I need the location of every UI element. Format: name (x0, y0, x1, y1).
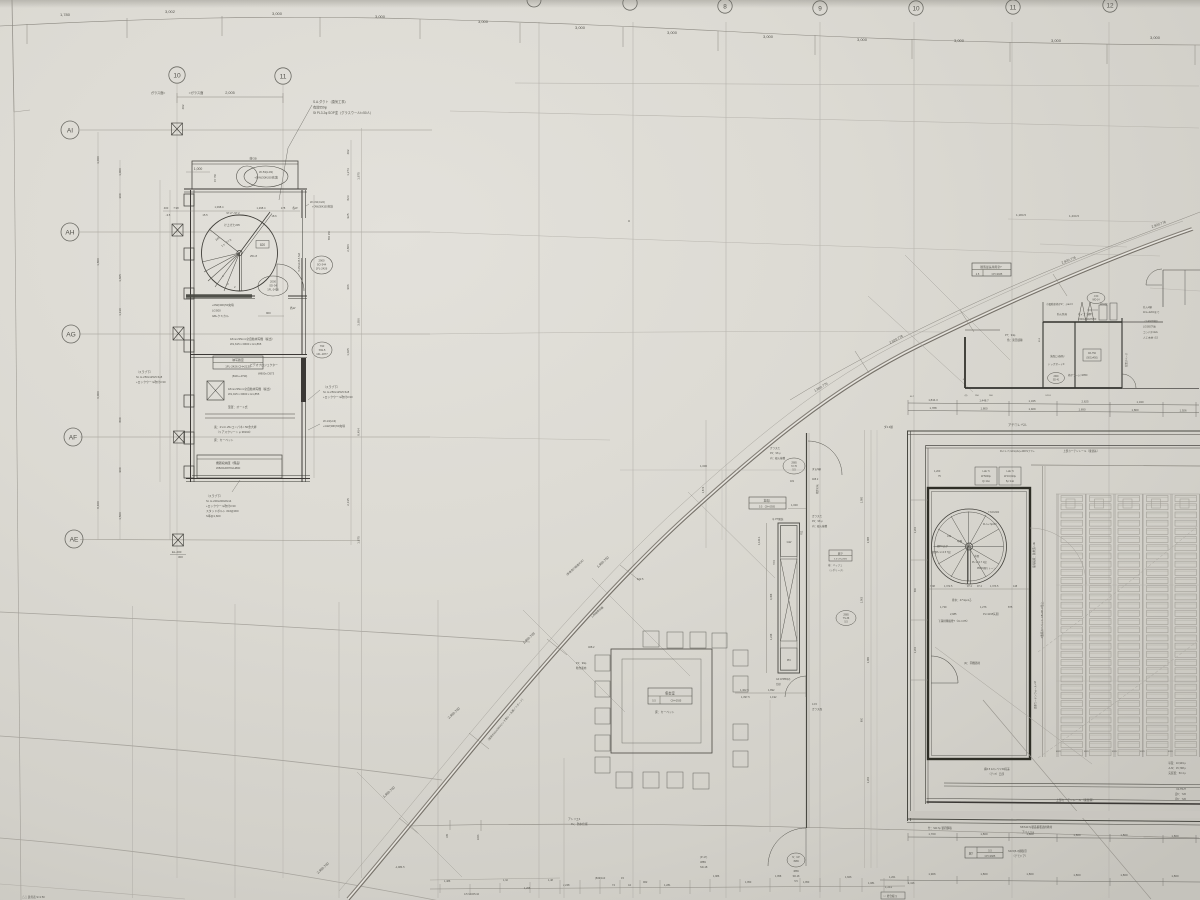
svg-text:3,000: 3,000 (667, 30, 678, 35)
svg-text:251.8: 251.8 (250, 254, 257, 258)
svg-text:1,273: 1,273 (346, 168, 350, 176)
svg-text:定F：726: 定F：726 (1175, 792, 1187, 796)
svg-text:820: 820 (260, 243, 266, 247)
svg-text:各W: 各W (292, 206, 298, 210)
svg-text:+DW(30K)50充填: +DW(30K)50充填 (312, 205, 333, 209)
svg-text:1,025: 1,025 (346, 348, 350, 356)
svg-text:1,875: 1,875 (357, 536, 361, 544)
svg-text:2600: 2600 (1053, 376, 1059, 378)
svg-text:場所の杭: 場所の杭 (815, 484, 819, 494)
svg-text:3,000: 3,000 (857, 37, 868, 42)
svg-text:（スラブ下）: （スラブ下） (136, 370, 153, 374)
svg-text:W820xD870xH800: W820xD870xH800 (216, 466, 241, 470)
svg-text:1,000: 1,000 (118, 168, 122, 176)
svg-text:1,950: 1,950 (745, 881, 752, 884)
svg-text:1,397.5: 1,397.5 (741, 695, 750, 699)
svg-text:2,625: 2,625 (1082, 400, 1089, 404)
svg-text:角：東天検種: 角：東天検種 (1007, 338, 1023, 342)
svg-text:GW: GW (787, 540, 792, 544)
svg-text:AH: AH (65, 229, 74, 236)
svg-text:ガラス面=: ガラス面= (151, 90, 166, 95)
svg-text:=ガラス面: =ガラス面 (189, 90, 204, 95)
svg-text:1,606: 1,606 (845, 875, 852, 879)
svg-text:ドッグオードF: ドッグオードF (1048, 362, 1065, 366)
svg-text:1,800: 1,800 (980, 832, 988, 836)
svg-text:棚PC店子: 棚PC店子 (937, 544, 948, 548)
svg-text:400: 400 (164, 206, 169, 210)
svg-text:1FL+2200まで: 1FL+2200まで (1143, 310, 1160, 314)
svg-text:P2：98 μ: P2：98 μ (812, 520, 823, 523)
svg-text:11: 11 (1010, 4, 1017, 11)
svg-text:4.15: 4.15 (812, 703, 817, 706)
svg-text:600: 600 (861, 717, 864, 722)
svg-text:1,980: 1,980 (861, 496, 864, 503)
svg-text:1,800: 1,800 (1073, 833, 1081, 837)
svg-text:3,000: 3,000 (375, 14, 386, 19)
svg-text:408.2: 408.2 (588, 645, 595, 649)
svg-text:LxE 7t: LxE 7t (982, 470, 989, 473)
svg-text:1,800: 1,800 (1026, 872, 1034, 876)
svg-text:(50Cx450): (50Cx450) (1086, 357, 1097, 360)
svg-text:PL=1195矢間: PL=1195矢間 (983, 612, 999, 616)
svg-text:1,000: 1,000 (700, 464, 707, 468)
svg-text:2,806: 2,806 (346, 244, 350, 252)
svg-text:（リアスクリーン φ 38190）: （リアスクリーン φ 38190） (216, 430, 252, 434)
svg-text:1,373.5: 1,373.5 (990, 585, 999, 588)
svg-text:408.2: 408.2 (812, 478, 819, 481)
svg-text:1,000: 1,000 (194, 167, 203, 171)
svg-text:FL：防水仕様: FL：防水仕様 (571, 822, 588, 826)
svg-text:W:16,610μ: W:16,610μ (1004, 475, 1017, 478)
svg-text:1,690: 1,690 (1079, 408, 1086, 412)
svg-text:機器収納庫（備品）: 機器収納庫（備品） (216, 460, 242, 465)
svg-text:1,098.4: 1,098.4 (215, 205, 224, 209)
svg-text:3889: 3889 (793, 870, 799, 873)
svg-text:位置スペース: 位置スペース (1124, 352, 1128, 367)
svg-text:+ロックウール吹付t=30: +ロックウール吹付t=30 (136, 380, 166, 384)
svg-text:防火区画: 防火区画 (1057, 312, 1068, 316)
svg-text:FL:L+7φ±00: FL:L+7φ±00 (983, 523, 997, 526)
svg-text:2900: 2900 (319, 259, 325, 263)
svg-text:床：カーペット: 床：カーペット (214, 438, 234, 442)
svg-text:SO-344: SO-344 (317, 263, 327, 267)
svg-text:1,200: 1,200 (914, 646, 917, 653)
svg-text:（テモドア）: （テモドア） (1012, 854, 1028, 858)
svg-text:床：カーペット: 床：カーペット (655, 710, 675, 714)
svg-text:下溝排隊擁壁?（FL=475）: 下溝排隊擁壁?（FL=475） (938, 619, 969, 623)
svg-text:1,958: 1,958 (775, 875, 782, 878)
svg-text:4,498: 4,498 (770, 593, 773, 600)
svg-text:SD-18: SD-18 (700, 865, 708, 869)
svg-text:定F：726: 定F：726 (1175, 797, 1187, 801)
svg-text:950%踊りトーン: 950%踊りトーン (977, 566, 996, 570)
svg-text:1,140.1: 1,140.1 (758, 536, 761, 545)
svg-text:7.98: 7.98 (173, 206, 179, 210)
svg-text:（スラブ下）: （スラブ下） (206, 494, 223, 498)
svg-text:セイフン棚H: セイフン棚H (1078, 312, 1093, 316)
svg-text:900: 900 (118, 467, 122, 472)
svg-text:1,800: 1,800 (1171, 834, 1179, 838)
svg-text:廊下: 廊下 (838, 552, 844, 556)
svg-text:1,800: 1,800 (980, 872, 988, 876)
svg-text:18mm/35mm全自動映写機（操出）: 18mm/35mm全自動映写機（操出） (228, 387, 272, 391)
svg-text:上部カーテンレール（乗替區）: 上部カーテンレール（乗替區） (1056, 798, 1095, 802)
svg-text:AI: AI (67, 127, 73, 134)
svg-text:W-C93,C22): W-C93,C22) (310, 200, 325, 204)
svg-text:1,081: 1,081 (868, 881, 875, 885)
svg-text:4.5 940±5.10: 4.5 940±5.10 (464, 892, 480, 896)
svg-text:300: 300 (118, 193, 122, 198)
svg-text:2.5: 2.5 (976, 273, 980, 276)
svg-text:SD-18: SD-18 (793, 875, 800, 878)
svg-text:1,246: 1,246 (770, 633, 773, 640)
svg-text:SW-5: SW-5 (319, 348, 326, 352)
svg-text:2,985: 2,985 (867, 536, 870, 543)
svg-text:3989: 3989 (793, 860, 799, 863)
svg-text:6970: 6970 (1056, 751, 1062, 753)
svg-text:1,875: 1,875 (357, 172, 361, 180)
svg-text:6,000: 6,000 (96, 391, 100, 399)
svg-text:1,892: 1,892 (768, 688, 775, 692)
svg-text:3,000: 3,000 (954, 38, 965, 43)
svg-text:WD-14: WD-14 (1092, 300, 1100, 302)
svg-text:2223: 2223 (477, 834, 480, 840)
svg-text:内：殿火検種: 内：殿火検種 (770, 456, 786, 460)
svg-text:1,276: 1,276 (980, 605, 987, 609)
svg-text:集会室: 集会室 (665, 691, 675, 696)
svg-text:7.98: 7.98 (930, 585, 935, 588)
svg-text:St. H-250x125x5.5x8: St. H-250x125x5.5x8 (136, 375, 163, 379)
svg-text:P1：99φ: P1：99φ (576, 661, 587, 665)
svg-text:グラス乙: グラス乙 (770, 446, 780, 450)
svg-text:RA 750: RA 750 (1088, 352, 1097, 355)
svg-text:3,000: 3,000 (1051, 38, 1062, 43)
svg-text:W:5000μ: W:5000μ (981, 475, 992, 478)
svg-text:N：UP: N：UP (792, 856, 800, 859)
svg-text:1,906: 1,906 (928, 872, 936, 876)
svg-text:CH=2935: CH=2935 (992, 273, 1003, 276)
svg-text:帯：バッフェ: 帯：バッフェ (828, 563, 843, 567)
svg-text:Qr:14α: Qr:14α (982, 480, 990, 483)
svg-text:椅子ラーム=2850: 椅子ラーム=2850 (1068, 373, 1088, 377)
svg-text:スタッドボルト #16@300: スタッドボルト #16@300 (206, 509, 239, 513)
svg-text:P7：94φ: P7：94φ (1005, 333, 1016, 337)
svg-text:SD-41: SD-41 (1053, 380, 1060, 382)
svg-text:2,985: 2,985 (950, 612, 957, 616)
svg-text:材GB: 材GB (249, 156, 256, 161)
svg-text:1,800: 1,800 (1026, 832, 1034, 836)
svg-text:1,200: 1,200 (867, 776, 870, 783)
svg-text:1,950: 1,950 (803, 881, 810, 884)
svg-text:案：2'x4 t.25xコンパネ t 50金大絆: 案：2'x4 t.25xコンパネ t 50金大絆 (214, 425, 257, 429)
svg-text:GB+ケミカル: GB+ケミカル (212, 314, 229, 318)
svg-text:823: 823 (346, 195, 350, 200)
svg-text:3889: 3889 (700, 860, 706, 864)
svg-text:2,135: 2,135 (346, 498, 350, 506)
svg-text:5.5 CH=2685: 5.5 CH=2685 (834, 559, 848, 561)
svg-text:5.5: 5.5 (652, 700, 656, 703)
svg-text:6970: 6970 (1140, 751, 1146, 753)
svg-text:1,281: 1,281 (664, 883, 671, 887)
svg-text:（スラブ下）: （スラブ下） (323, 385, 340, 389)
svg-text:St. H-250x125x5.5x8: St. H-250x125x5.5x8 (323, 390, 350, 394)
svg-text:人工木材 t 15: 人工木材 t 15 (1143, 336, 1158, 340)
svg-text:1,800: 1,800 (1120, 873, 1128, 877)
svg-text:SD-5(5-3)鋼製引: SD-5(5-3)鋼製引 (1008, 849, 1028, 853)
svg-text:仕：S117φ 製研鋼取: 仕：S117φ 製研鋼取 (928, 826, 952, 830)
svg-text:○○ 総合級 §: ○○ 総合級 § (883, 894, 897, 898)
svg-text:3,000: 3,000 (763, 34, 774, 39)
svg-text:実装置：53.4 μ: 実装置：53.4 μ (1168, 771, 1186, 775)
svg-text:GF 1PPB0(2): GF 1PPB0(2) (776, 678, 791, 681)
svg-text:3,000: 3,000 (272, 11, 283, 16)
svg-text:アトリエ4: アトリエ4 (568, 817, 581, 821)
svg-text:1,800: 1,800 (1132, 408, 1139, 412)
svg-text:1,192: 1,192 (770, 695, 777, 699)
svg-text:1,986: 1,986 (713, 875, 720, 878)
svg-text:875: 875 (1008, 605, 1013, 609)
svg-text:CH=2685: CH=2685 (985, 855, 996, 858)
svg-text:1,372.5: 1,372.5 (944, 585, 953, 588)
svg-text:1,905: 1,905 (861, 596, 864, 603)
svg-text:1,800: 1,800 (1171, 874, 1179, 878)
svg-text:10: 10 (912, 5, 920, 12)
svg-text:CH=2935: CH=2935 (671, 700, 682, 703)
svg-text:1FL-1877: 1FL-1877 (316, 352, 328, 356)
svg-text:1,200: 1,200 (914, 526, 917, 533)
svg-text:15.5: 15.5 (202, 213, 208, 217)
svg-text:1,130: 1,130 (118, 308, 122, 316)
svg-text:97.4: 97.4 (967, 585, 972, 588)
svg-text:18mm/35mm全自動映写機（操出）: 18mm/35mm全自動映写機（操出） (230, 337, 274, 341)
svg-text:SD-34: SD-34 (269, 284, 277, 288)
svg-text:△△ 建具表 S=1:50: △△ 建具表 S=1:50 (22, 895, 45, 899)
svg-text:ダ2.3額: ダ2.3額 (884, 425, 893, 429)
svg-text:型置：オート式: 型置：オート式 (228, 405, 248, 409)
svg-text:1,448.7: 1,448.7 (979, 399, 989, 403)
svg-text:1,929: 1,929 (1029, 407, 1036, 411)
svg-text:178: 178 (281, 206, 286, 210)
svg-text:1,486: 1,486 (444, 880, 451, 883)
svg-text:622.5: 622.5 (637, 577, 644, 581)
svg-text:1,500: 1,500 (118, 512, 122, 520)
svg-text:2重床カーペット AB+48 メ仕上: 2重床カーペット AB+48 メ仕上 (1040, 601, 1044, 638)
svg-text:LGS65下地: LGS65下地 (1143, 325, 1156, 329)
svg-text:(8): (8) (965, 395, 968, 397)
svg-text:W-13(L13): W-13(L13) (323, 419, 336, 423)
svg-text:1,298.4: 1,298.4 (257, 206, 266, 210)
svg-text:906: 906 (346, 284, 350, 289)
svg-text:11: 11 (280, 74, 287, 81)
svg-text:-3.5: -3.5 (166, 213, 171, 217)
svg-text:S.A.ダクト（換気工事）: S.A.ダクト（換気工事） (313, 99, 348, 104)
svg-text:1,434.5: 1,434.5 (1069, 214, 1079, 218)
svg-text:W-53(L03): W-53(L03) (259, 170, 273, 174)
svg-text:名入2額: 名入2額 (1143, 305, 1152, 309)
svg-text:1,780: 1,780 (60, 12, 71, 17)
svg-text:横6.5 12シペリ50段差: 横6.5 12シペリ50段差 (984, 767, 1010, 771)
svg-text:6970: 6970 (1112, 751, 1118, 753)
svg-text:各W: 各W (290, 306, 296, 310)
svg-text:5.5: 5.5 (988, 850, 992, 853)
svg-text:3,000: 3,000 (1150, 35, 1161, 40)
svg-text:97.4: 97.4 (977, 585, 982, 588)
svg-text:手摺: 手摺 (974, 554, 980, 558)
svg-text:1,800: 1,800 (981, 407, 988, 411)
svg-text:1,700: 1,700 (928, 832, 936, 836)
svg-text:W1,615 x D600 x H1,865: W1,615 x D600 x H1,865 (230, 342, 262, 346)
svg-text:観覧最長専用室?: 観覧最長専用室? (980, 265, 1002, 269)
svg-text:925: 925 (346, 213, 350, 218)
svg-text:S率@1,600: S率@1,600 (206, 514, 221, 518)
svg-text:DL75U?: DL75U? (1176, 787, 1186, 791)
svg-text:仕様: 仕様 (776, 682, 781, 686)
svg-text:PIC: PIC (787, 658, 791, 662)
svg-text:402: 402 (181, 104, 185, 109)
svg-text:3,656: 3,656 (357, 318, 361, 326)
svg-text:コンパネt12u: コンパネt12u (1143, 330, 1158, 334)
svg-text:1,800: 1,800 (96, 258, 100, 266)
svg-text:ビデオプロジェクター: ビデオプロジェクター (250, 363, 278, 367)
svg-text:8,400: 8,400 (96, 501, 100, 509)
svg-text:W1,915 x D600 x H1,855: W1,915 x D600 x H1,855 (228, 392, 260, 396)
svg-text:1,788: 1,788 (930, 406, 937, 410)
svg-text:有効550φ: 有効550φ (313, 105, 327, 110)
svg-text:St. H-200x200x8x14: St. H-200x200x8x14 (206, 499, 232, 503)
svg-text:6970: 6970 (1168, 751, 1174, 753)
svg-text:LxE 7t: LxE 7t (1006, 470, 1013, 473)
svg-text:廊間PL:L=4.5 7段: 廊間PL:L=4.5 7段 (931, 550, 951, 554)
svg-text:73.9: 73.9 (773, 560, 776, 565)
svg-text:900: 900 (914, 587, 917, 592)
svg-text:AF: AF (69, 434, 77, 441)
svg-text:客席段床：鉄骨造 t-3b: 客席段床：鉄骨造 t-3b (1032, 541, 1036, 567)
svg-text:6970: 6970 (1084, 751, 1090, 753)
svg-text:18.6: 18.6 (271, 214, 277, 218)
svg-text:上部カーテンレール（乗替區）: 上部カーテンレール（乗替區） (1063, 449, 1099, 453)
svg-text:中輪: 中輪 (957, 539, 963, 543)
svg-text:1FL-2426 CH=2130: 1FL-2426 CH=2130 (225, 365, 251, 369)
svg-text:2000: 2000 (270, 280, 276, 284)
svg-text:300: 300 (178, 555, 183, 559)
svg-text:J-50: J-50 (1094, 296, 1099, 298)
svg-text:962: 962 (643, 880, 648, 884)
svg-text:+DW(30K)50充填: +DW(30K)50充填 (212, 303, 234, 307)
svg-text:面張カーテンウォール+4#: 面張カーテンウォール+4# (1033, 680, 1037, 709)
svg-text:1,32: 1,32 (503, 879, 508, 882)
svg-text:ガラス面: ガラス面 (812, 707, 822, 711)
svg-text:241.8: 241.8 (1045, 395, 1051, 397)
svg-text:映写確室: 映写確室 (232, 357, 244, 362)
svg-text:5.5 CH=2935: 5.5 CH=2935 (759, 506, 776, 509)
svg-text:1,241: 1,241 (885, 885, 892, 889)
svg-text:AE: AE (70, 536, 79, 543)
svg-text:J42: J42 (947, 535, 952, 538)
svg-text:1,184.5: 1,184.5 (1016, 213, 1026, 217)
svg-text:辛 PT酸装: 辛 PT酸装 (772, 517, 784, 521)
svg-text:A-M：15,798 μ: A-M：15,798 μ (1169, 766, 1187, 770)
svg-text:1FL-2426: 1FL-2426 (316, 267, 328, 271)
svg-text:3,000: 3,000 (575, 25, 586, 30)
svg-text:1,980: 1,980 (867, 656, 870, 663)
svg-text:790: 790 (320, 344, 325, 348)
svg-text:P22: P22 (801, 530, 804, 535)
svg-text:け上げた205: け上げた205 (224, 223, 240, 227)
svg-text:-1,984.5: -1,984.5 (395, 865, 405, 869)
svg-text:12: 12 (1106, 2, 1114, 9)
svg-text:ガラス乙: ガラス乙 (812, 514, 822, 518)
svg-text:（テ=7）凸部: （テ=7）凸部 (988, 772, 1004, 776)
svg-text:LGS00: LGS00 (212, 309, 221, 313)
svg-text:（レ手リーチ）: （レ手リーチ） (828, 568, 845, 572)
svg-text:+ロックウール吹付t=30: +ロックウール吹付t=30 (206, 504, 236, 508)
svg-text:1,340: 1,340 (1137, 400, 1144, 404)
svg-text:9: 9 (818, 5, 822, 12)
svg-text:P2：98 μ: P2：98 μ (770, 452, 781, 455)
svg-text:148: 148 (1013, 585, 1018, 588)
svg-text:1,200: 1,200 (934, 470, 941, 473)
svg-text:PL:L=4.7 1段: PL:L=4.7 1段 (972, 560, 987, 564)
svg-text:7.8-8x300: 7.8-8x300 (988, 511, 1000, 514)
svg-text:5μ':14α: 5μ':14α (1006, 480, 1015, 483)
svg-text:St PL3.2φ SOP塗（グラスウールt=50人）: St PL3.2φ SOP塗（グラスウールt=50人） (313, 110, 373, 115)
svg-text:展7: 展7 (969, 851, 974, 856)
svg-text:+GW(30K)50充填: +GW(30K)50充填 (323, 424, 345, 428)
svg-text:(B1FL+4790): (B1FL+4790) (232, 374, 247, 378)
svg-text:H-250x125.5.5x8: H-250x125.5.5x8 (298, 252, 301, 272)
svg-text:650 150: 650 150 (328, 230, 331, 240)
svg-text:1500x450xH450: 1500x450xH450 (1078, 318, 1097, 321)
svg-text:EL-200: EL-200 (172, 550, 182, 554)
svg-text:W800x D573: W800x D573 (258, 372, 275, 376)
svg-text:3,060: 3,060 (96, 156, 100, 164)
svg-text:97.2～97.2: 97.2～97.2 (226, 211, 240, 215)
svg-text:+DW(30K)50充填: +DW(30K)50充填 (254, 175, 277, 180)
svg-text:1,416: 1,416 (908, 881, 915, 885)
svg-text:1,000: 1,000 (791, 503, 798, 507)
svg-text:1,844.3: 1,844.3 (928, 398, 938, 402)
svg-text:(P-17): (P-17) (700, 855, 707, 859)
svg-text:15 750: 15 750 (213, 173, 217, 181)
svg-text:1,345: 1,345 (1029, 399, 1036, 403)
svg-text:ダ五3額: ダ五3額 (812, 467, 821, 471)
svg-text:10: 10 (173, 73, 181, 80)
svg-text:AG: AG (66, 331, 76, 338)
svg-text:1,800: 1,800 (1120, 833, 1128, 837)
svg-text:1,48: 1,48 (548, 879, 553, 882)
svg-text:181: 181 (790, 480, 795, 483)
svg-text:1,739: 1,739 (940, 605, 947, 609)
svg-text:195: 195 (446, 833, 449, 838)
svg-text:900: 900 (266, 311, 271, 315)
svg-text:1,873: 1,873 (701, 486, 705, 493)
svg-text:8: 8 (723, 3, 727, 10)
svg-text:1,605: 1,605 (118, 274, 122, 282)
svg-text:平面：10,949 μ: 平面：10,949 μ (1168, 761, 1186, 765)
svg-text:1,265: 1,265 (524, 887, 531, 890)
svg-text:1,201: 1,201 (889, 875, 896, 879)
svg-text:3,002: 3,002 (165, 9, 176, 14)
svg-text:FL=レベルFL(2u)+4FKSフド+: FL=レベルFL(2u)+4FKSフド+ (1000, 449, 1035, 453)
svg-text:3,000: 3,000 (478, 19, 489, 24)
svg-text:内：殿火検種: 内：殿火検種 (812, 524, 828, 528)
svg-text:+ロックウール吹付t=30: +ロックウール吹付t=30 (323, 395, 353, 399)
svg-text:洗面口 器具у: 洗面口 器具у (1050, 354, 1065, 358)
svg-text:1FL-2426: 1FL-2426 (267, 288, 279, 292)
svg-text:動作案内: 動作案内 (576, 666, 587, 670)
svg-text:小電動車椅子Z：, pad 3: 小電動車椅子Z：, pad 3 (1046, 302, 1073, 306)
svg-text:1,926: 1,926 (1180, 409, 1187, 413)
